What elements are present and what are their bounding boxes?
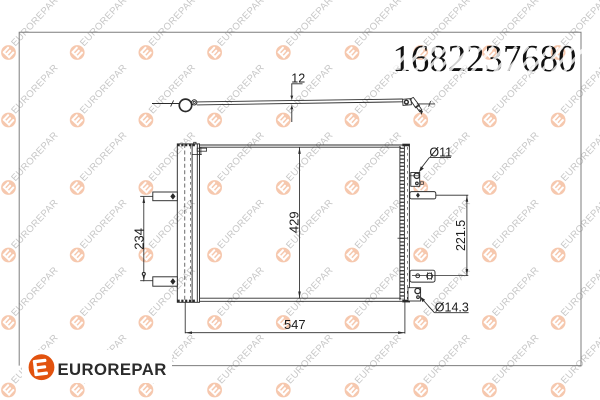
- svg-text:221.5: 221.5: [454, 220, 468, 251]
- svg-text:Ø14.3: Ø14.3: [435, 301, 469, 315]
- svg-text:547: 547: [284, 317, 306, 332]
- svg-text:234: 234: [131, 228, 146, 250]
- svg-text:429: 429: [286, 211, 301, 233]
- svg-text:EUROREPAR: EUROREPAR: [58, 360, 167, 379]
- svg-text:Ø11: Ø11: [429, 146, 452, 160]
- svg-text:12: 12: [291, 71, 305, 85]
